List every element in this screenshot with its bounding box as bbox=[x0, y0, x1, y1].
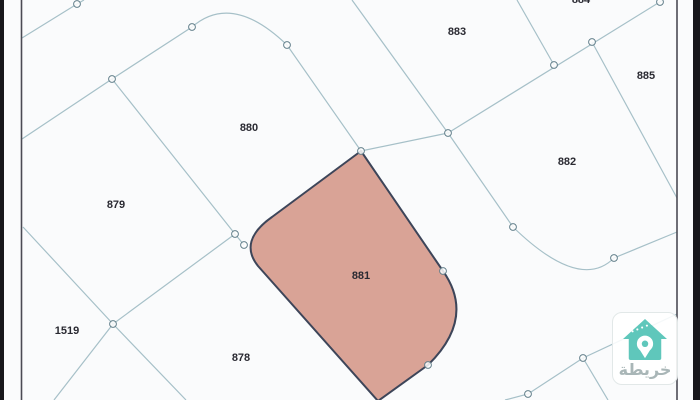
parcel-label-878: 878 bbox=[232, 352, 250, 364]
vertex-marker bbox=[510, 224, 517, 231]
vertex-marker bbox=[580, 355, 587, 362]
parcel-label-880: 880 bbox=[240, 122, 258, 134]
parcel-label-879: 879 bbox=[107, 199, 125, 211]
boundary-line bbox=[361, 133, 448, 151]
parcel-label-885: 885 bbox=[637, 70, 655, 82]
parcel-label-881: 881 bbox=[352, 270, 370, 282]
cadastral-map[interactable]: 880 879 1519 878 881 883 884 885 882 bbox=[0, 0, 700, 400]
vertex-marker bbox=[232, 231, 239, 238]
vertex-marker bbox=[189, 24, 196, 31]
vertex-marker bbox=[657, 0, 664, 5]
street-curve-line bbox=[448, 133, 677, 270]
parcel-label-884: 884 bbox=[572, 0, 591, 6]
parcel-label-1519: 1519 bbox=[55, 325, 79, 337]
vertex-marker bbox=[358, 148, 365, 155]
logo-text: خريطة bbox=[619, 362, 672, 378]
house-location-pin-icon bbox=[620, 318, 670, 361]
vertex-marker bbox=[445, 130, 452, 137]
boundary-line bbox=[23, 227, 186, 400]
vertex-marker bbox=[425, 362, 432, 369]
vertex-marker bbox=[525, 391, 532, 398]
parcel-label-883: 883 bbox=[448, 26, 466, 38]
boundary-line bbox=[583, 358, 608, 400]
boundary-line bbox=[517, 0, 554, 65]
vertex-marker bbox=[611, 255, 618, 262]
app-logo-watermark: خريطة bbox=[612, 312, 678, 385]
boundary-line bbox=[592, 42, 677, 198]
boundary-line bbox=[352, 0, 448, 133]
vertex-marker bbox=[551, 62, 558, 69]
vertex-marker bbox=[109, 76, 116, 83]
vertex-marker bbox=[589, 39, 596, 46]
black-bar-right bbox=[693, 0, 700, 400]
vertex-marker bbox=[284, 42, 291, 49]
vertex-marker bbox=[74, 1, 81, 8]
parcel-label-882: 882 bbox=[558, 156, 576, 168]
street-curve-line bbox=[112, 13, 361, 151]
map-app-screenshot: 880 879 1519 878 881 883 884 885 882 bbox=[0, 0, 700, 400]
vertex-marker bbox=[440, 268, 447, 275]
vertex-marker bbox=[110, 321, 117, 328]
vertex-marker bbox=[241, 242, 248, 249]
black-bar-left bbox=[0, 0, 4, 400]
boundary-line bbox=[113, 234, 235, 324]
boundary-line bbox=[112, 79, 244, 245]
boundary-line bbox=[22, 79, 112, 139]
